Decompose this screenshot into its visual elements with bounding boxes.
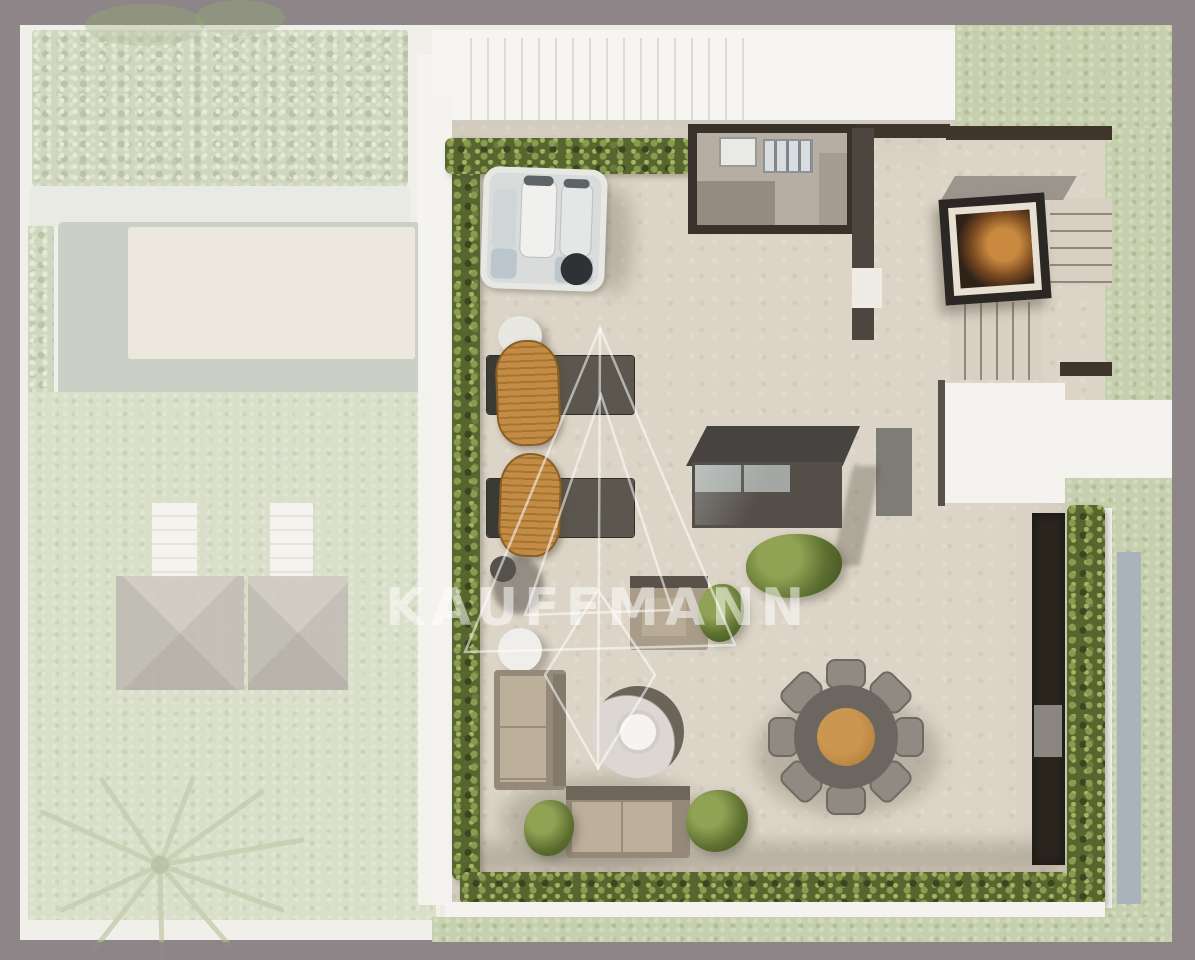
dark-walkway bbox=[1032, 513, 1065, 865]
headrest-1 bbox=[524, 175, 554, 186]
hot-tub-lounger-2 bbox=[559, 183, 594, 258]
stair-treads-east bbox=[1050, 198, 1112, 286]
dining-chair bbox=[826, 785, 866, 815]
dining-chair bbox=[894, 717, 924, 757]
roof-slats bbox=[455, 38, 745, 120]
roof-walkway-east bbox=[1063, 400, 1172, 478]
triangle-logo bbox=[380, 300, 820, 790]
outdoor-kitchen bbox=[688, 124, 856, 234]
wall-opening bbox=[852, 268, 882, 308]
landing-wall bbox=[938, 380, 945, 506]
fireplace bbox=[938, 192, 1051, 305]
fireplace-flame bbox=[956, 210, 1035, 289]
hot-tub-seat bbox=[491, 188, 517, 249]
privacy-hedge-south bbox=[460, 872, 1068, 905]
hot-tub-lounger-1 bbox=[519, 179, 558, 258]
glass-strip bbox=[1117, 552, 1141, 904]
stair-beam-north bbox=[946, 126, 1112, 140]
headrest-2 bbox=[563, 179, 589, 189]
lawn-northeast bbox=[955, 25, 1172, 135]
sofa-horizontal bbox=[566, 786, 690, 858]
faded-context-veil bbox=[20, 25, 440, 940]
stair-beam-southeast bbox=[1060, 362, 1112, 376]
lower-wall-block bbox=[876, 428, 912, 516]
partition-wall bbox=[852, 128, 874, 340]
privacy-hedge-east bbox=[1067, 505, 1105, 907]
site-plan-frame: KAUFFMANN bbox=[0, 0, 1195, 960]
frame-edge-right bbox=[1172, 0, 1195, 960]
watermark-text: KAUFFMANN bbox=[385, 578, 795, 638]
kitchen-counter-side bbox=[819, 153, 847, 225]
lawn-south bbox=[432, 917, 1172, 942]
kitchen-sink bbox=[719, 137, 757, 167]
hot-tub bbox=[480, 166, 608, 292]
stair-treads-south bbox=[950, 302, 1042, 380]
bench bbox=[1034, 705, 1062, 757]
kitchen-counter-shade bbox=[697, 181, 775, 225]
dining-table-center bbox=[817, 708, 875, 766]
kitchen-grill bbox=[763, 139, 813, 173]
sofa-horizontal-cushions bbox=[572, 802, 672, 852]
lawn-east-upper bbox=[1105, 128, 1172, 403]
water-patch-1 bbox=[490, 248, 517, 279]
frame-edge-bottom bbox=[0, 942, 1195, 960]
stair-landing bbox=[945, 383, 1065, 503]
